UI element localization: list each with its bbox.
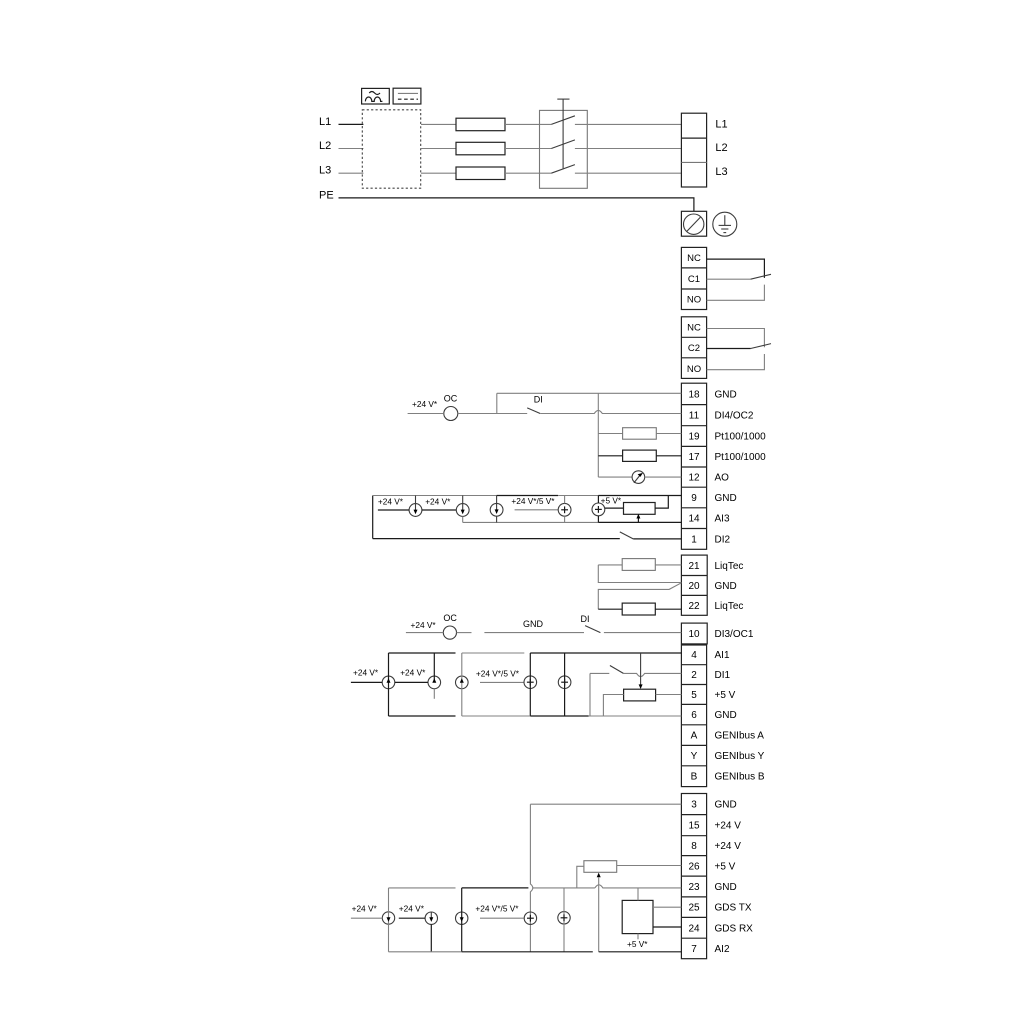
- svg-text:GND: GND: [523, 619, 544, 629]
- svg-text:L2: L2: [715, 142, 727, 154]
- svg-text:DI3/OC1: DI3/OC1: [715, 629, 754, 640]
- svg-text:3: 3: [691, 800, 697, 811]
- svg-text:L1: L1: [715, 118, 727, 130]
- svg-text:NC: NC: [687, 253, 701, 264]
- svg-text:10: 10: [688, 629, 700, 640]
- svg-text:+5 V*: +5 V*: [601, 496, 622, 506]
- svg-text:NO: NO: [687, 364, 701, 375]
- svg-text:LiqTec: LiqTec: [715, 601, 744, 612]
- svg-text:+24 V*: +24 V*: [400, 668, 426, 678]
- svg-text:5: 5: [691, 690, 697, 701]
- svg-text:+5 V*: +5 V*: [627, 939, 648, 949]
- svg-text:2: 2: [691, 670, 697, 681]
- svg-text:Pt100/1000: Pt100/1000: [715, 432, 767, 443]
- svg-text:LiqTec: LiqTec: [715, 561, 744, 572]
- svg-text:NC: NC: [687, 322, 701, 333]
- svg-text:+24 V*: +24 V*: [352, 904, 378, 914]
- svg-text:+24 V*: +24 V*: [411, 620, 437, 630]
- svg-text:DI1: DI1: [715, 670, 731, 681]
- svg-text:GND: GND: [715, 800, 737, 811]
- svg-text:21: 21: [688, 561, 700, 572]
- svg-text:GND: GND: [715, 581, 737, 592]
- svg-text:DI2: DI2: [715, 534, 731, 545]
- svg-text:12: 12: [688, 473, 700, 484]
- svg-text:B: B: [691, 772, 698, 783]
- svg-text:Y: Y: [691, 751, 698, 762]
- svg-text:GND: GND: [715, 389, 737, 400]
- svg-text:+5 V: +5 V: [715, 690, 736, 701]
- svg-text:DI: DI: [581, 614, 590, 624]
- svg-text:+24 V*: +24 V*: [399, 904, 425, 914]
- svg-text:GND: GND: [715, 493, 737, 504]
- svg-text:26: 26: [688, 861, 700, 872]
- svg-text:GENIbus A: GENIbus A: [715, 731, 765, 742]
- svg-text:GENIbus B: GENIbus B: [715, 772, 765, 783]
- svg-text:1: 1: [691, 534, 697, 545]
- svg-text:18: 18: [688, 389, 700, 400]
- svg-text:GENIbus Y: GENIbus Y: [715, 751, 765, 762]
- svg-text:9: 9: [691, 493, 697, 504]
- svg-text:+24 V: +24 V: [715, 841, 742, 852]
- svg-text:+24 V*: +24 V*: [378, 497, 404, 507]
- svg-text:GND: GND: [715, 882, 737, 893]
- svg-text:19: 19: [688, 432, 700, 443]
- svg-text:11: 11: [689, 411, 700, 422]
- svg-text:OC: OC: [444, 393, 458, 403]
- svg-text:OC: OC: [443, 613, 457, 623]
- svg-text:25: 25: [688, 903, 700, 914]
- svg-text:GND: GND: [715, 710, 737, 721]
- svg-text:AO: AO: [715, 473, 730, 484]
- svg-text:24: 24: [688, 923, 700, 934]
- svg-text:15: 15: [688, 821, 700, 832]
- svg-text:DI4/OC2: DI4/OC2: [715, 411, 754, 422]
- svg-text:L1: L1: [319, 116, 331, 128]
- svg-text:AI2: AI2: [715, 944, 730, 955]
- svg-text:+24 V*/5 V*: +24 V*/5 V*: [511, 496, 555, 506]
- svg-text:AI3: AI3: [715, 514, 730, 525]
- svg-text:AI1: AI1: [715, 650, 730, 661]
- svg-text:6: 6: [691, 710, 697, 721]
- svg-text:DI: DI: [534, 395, 543, 405]
- svg-text:C1: C1: [688, 274, 700, 285]
- svg-text:Pt100/1000: Pt100/1000: [715, 452, 767, 463]
- svg-text:L3: L3: [715, 166, 727, 178]
- svg-text:7: 7: [691, 944, 697, 955]
- svg-text:8: 8: [691, 841, 697, 852]
- svg-text:+24 V: +24 V: [715, 821, 742, 832]
- svg-text:+24 V*: +24 V*: [412, 399, 438, 409]
- svg-text:+5 V: +5 V: [715, 861, 736, 872]
- svg-text:NO: NO: [687, 295, 701, 306]
- svg-text:A: A: [691, 731, 698, 742]
- svg-text:+24 V*: +24 V*: [425, 497, 451, 507]
- svg-text:PE: PE: [319, 189, 334, 201]
- svg-text:+24 V*: +24 V*: [353, 668, 379, 678]
- svg-text:+24 V*/5 V*: +24 V*/5 V*: [475, 904, 519, 914]
- svg-text:GDS RX: GDS RX: [715, 923, 754, 934]
- svg-text:C2: C2: [688, 343, 700, 354]
- svg-text:L2: L2: [319, 140, 331, 152]
- svg-text:4: 4: [691, 650, 697, 661]
- svg-text:L3: L3: [319, 165, 331, 177]
- svg-text:14: 14: [688, 514, 700, 525]
- svg-text:+24 V*/5 V*: +24 V*/5 V*: [476, 668, 520, 678]
- svg-text:17: 17: [688, 452, 700, 463]
- svg-text:GDS TX: GDS TX: [715, 903, 752, 914]
- svg-text:22: 22: [688, 601, 700, 612]
- svg-text:20: 20: [688, 581, 700, 592]
- svg-text:23: 23: [688, 882, 700, 893]
